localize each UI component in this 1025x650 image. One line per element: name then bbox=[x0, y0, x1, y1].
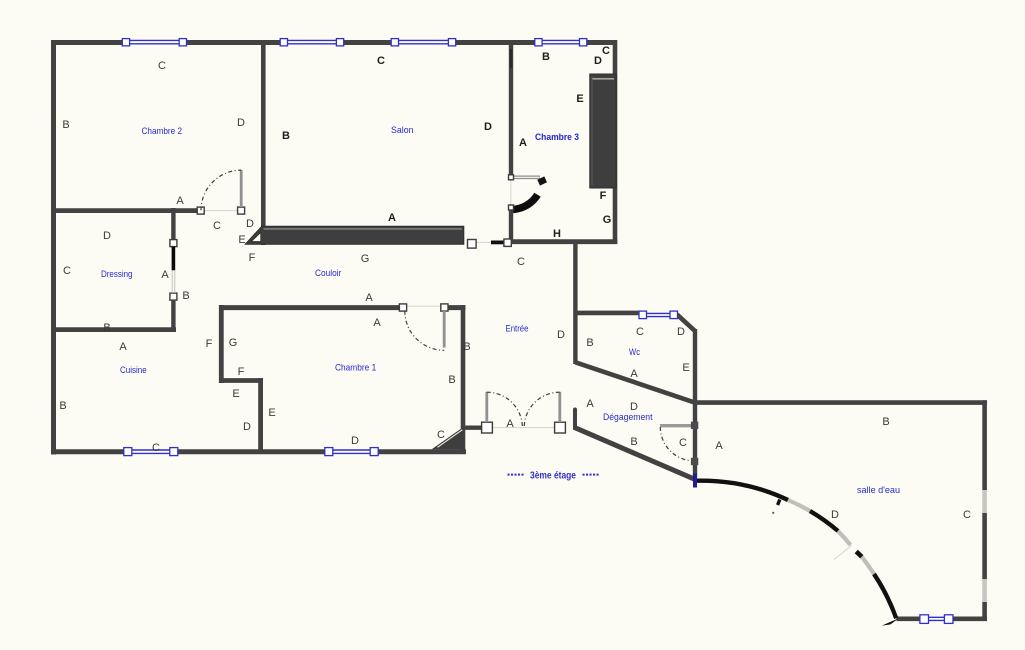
svg-text:D: D bbox=[246, 218, 254, 230]
svg-text:Salon: Salon bbox=[391, 125, 414, 136]
svg-text:F: F bbox=[249, 252, 256, 264]
svg-text:B: B bbox=[882, 416, 889, 428]
svg-text:B: B bbox=[586, 337, 593, 349]
svg-text:C: C bbox=[963, 509, 971, 521]
svg-text:C: C bbox=[152, 442, 160, 454]
svg-text:D: D bbox=[557, 329, 565, 341]
svg-text:C: C bbox=[636, 326, 644, 338]
svg-text:B: B bbox=[103, 322, 110, 334]
svg-text:C: C bbox=[437, 429, 445, 441]
svg-text:D: D bbox=[243, 421, 251, 433]
svg-text:E: E bbox=[682, 362, 689, 374]
svg-text:salle d'eau: salle d'eau bbox=[857, 485, 900, 496]
svg-text:A: A bbox=[176, 195, 184, 207]
svg-text:D: D bbox=[351, 435, 359, 447]
svg-text:3ème étage: 3ème étage bbox=[530, 471, 576, 482]
svg-text:A: A bbox=[715, 440, 723, 452]
svg-text:Chambre 1: Chambre 1 bbox=[335, 363, 376, 374]
svg-text:Chambre 2: Chambre 2 bbox=[142, 126, 183, 137]
svg-text:Entrée: Entrée bbox=[506, 324, 529, 335]
svg-text:B: B bbox=[448, 374, 455, 386]
svg-text:A: A bbox=[630, 368, 638, 380]
svg-text:C: C bbox=[517, 256, 525, 268]
svg-text:C: C bbox=[602, 45, 610, 57]
svg-text:Couloir: Couloir bbox=[315, 268, 341, 279]
svg-text:A: A bbox=[388, 212, 396, 224]
svg-text:E: E bbox=[232, 388, 239, 400]
svg-text:G: G bbox=[229, 337, 238, 349]
svg-text:B: B bbox=[542, 51, 550, 63]
svg-text:D: D bbox=[630, 401, 638, 413]
svg-text:C: C bbox=[213, 220, 221, 232]
svg-text:E: E bbox=[238, 234, 245, 246]
svg-text:B: B bbox=[463, 341, 470, 353]
svg-text:G: G bbox=[603, 214, 612, 226]
svg-text:A: A bbox=[506, 418, 514, 430]
svg-text:D: D bbox=[831, 509, 839, 521]
svg-text:E: E bbox=[576, 93, 583, 105]
svg-text:A: A bbox=[373, 317, 381, 329]
svg-text:Dégagement: Dégagement bbox=[603, 412, 653, 423]
svg-text:B: B bbox=[282, 130, 290, 142]
svg-text:A: A bbox=[519, 137, 527, 149]
svg-text:D: D bbox=[594, 55, 602, 67]
svg-text:F: F bbox=[600, 190, 607, 202]
svg-text:C: C bbox=[377, 55, 385, 67]
svg-text:A: A bbox=[586, 398, 594, 410]
svg-text:D: D bbox=[484, 121, 492, 133]
svg-text:F: F bbox=[238, 366, 245, 378]
svg-text:B: B bbox=[630, 436, 637, 448]
svg-text:D: D bbox=[103, 230, 111, 242]
svg-text:A: A bbox=[119, 341, 127, 353]
svg-text:Cuisine: Cuisine bbox=[120, 365, 147, 376]
svg-text:A: A bbox=[365, 292, 373, 304]
svg-text:H: H bbox=[553, 228, 561, 240]
svg-text:Dressing: Dressing bbox=[101, 269, 133, 280]
svg-text:C: C bbox=[63, 265, 71, 277]
svg-text:B: B bbox=[182, 290, 189, 302]
svg-text:A: A bbox=[161, 269, 169, 281]
svg-text:G: G bbox=[361, 253, 370, 265]
svg-text:Chambre 3: Chambre 3 bbox=[535, 132, 579, 143]
svg-text:B: B bbox=[59, 400, 66, 412]
svg-text:B: B bbox=[62, 119, 69, 131]
svg-text:F: F bbox=[206, 338, 213, 350]
svg-text:C: C bbox=[679, 437, 687, 449]
svg-text:Wc: Wc bbox=[629, 347, 640, 358]
svg-text:E: E bbox=[268, 407, 275, 419]
svg-text:D: D bbox=[237, 117, 245, 129]
svg-text:C: C bbox=[158, 60, 166, 72]
svg-text:D: D bbox=[677, 326, 685, 338]
